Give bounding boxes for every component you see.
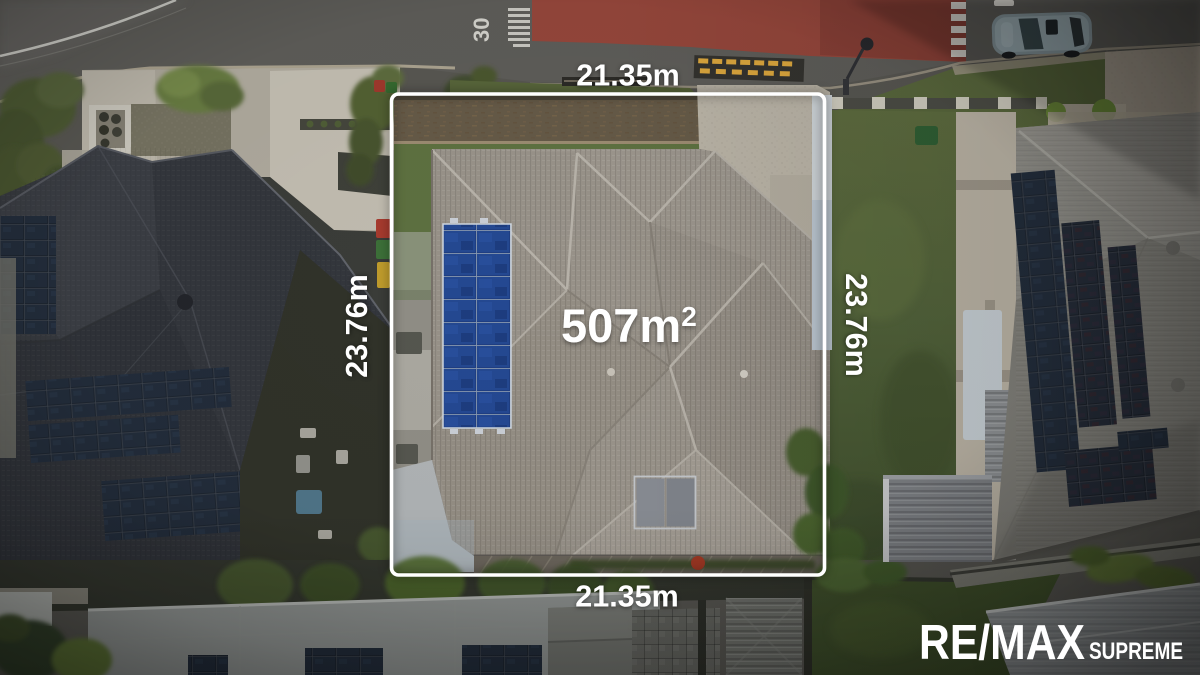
svg-text:SUPREME: SUPREME	[1089, 638, 1183, 665]
svg-text:21.35m: 21.35m	[576, 59, 679, 93]
svg-text:21.35m: 21.35m	[575, 580, 678, 614]
svg-text:507m2: 507m2	[561, 299, 697, 352]
svg-text:23.76m: 23.76m	[340, 274, 374, 377]
svg-text:23.76m: 23.76m	[839, 273, 873, 376]
svg-text:RE/MAX: RE/MAX	[919, 616, 1085, 670]
